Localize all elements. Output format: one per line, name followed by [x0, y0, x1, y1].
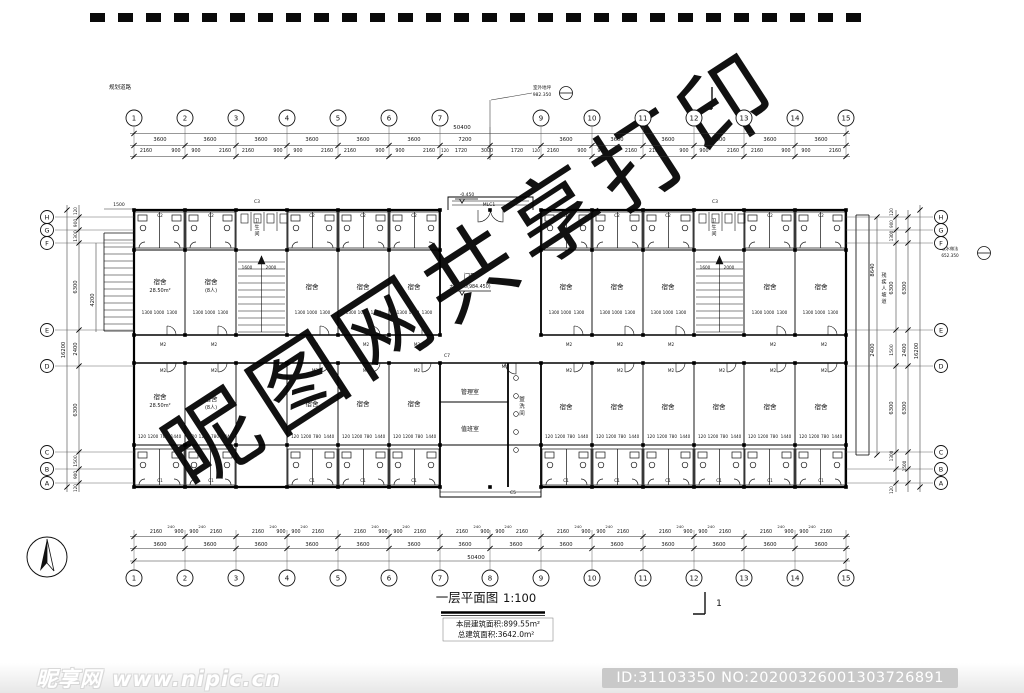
annotation: 240	[605, 524, 613, 529]
annotation: 3600	[203, 542, 216, 548]
annotation: 宿舍	[560, 402, 574, 411]
dim-label: 780	[364, 434, 372, 439]
annotation: 900	[679, 148, 688, 154]
annotation: 2160	[423, 148, 435, 154]
annotation: 900	[189, 529, 198, 535]
annotation: 3000	[481, 148, 493, 154]
annotation: 2160	[751, 148, 763, 154]
annotation: 1500	[902, 460, 907, 471]
tag-label: C2	[767, 213, 773, 218]
annotation: 2160	[557, 529, 569, 535]
annotation: 3600	[610, 542, 623, 548]
annotation: 4200	[90, 293, 96, 306]
annotation: 宿舍	[662, 282, 676, 291]
grid-bubble-label: E	[45, 326, 49, 334]
annotation: 6300	[889, 401, 895, 414]
dim-label: 1440	[781, 434, 792, 439]
grid-bubble-label: 4	[285, 575, 290, 583]
annotation: 6300	[902, 281, 908, 294]
annotation: 900	[395, 148, 404, 154]
annotation: 1500	[73, 455, 79, 467]
annotation: 6300	[889, 281, 895, 294]
annotation: (8人)	[205, 405, 217, 411]
tag-label: M2	[160, 342, 167, 347]
north-arrow	[27, 537, 67, 577]
grid-bubble-label: 15	[842, 575, 851, 583]
grid-bubble-label: 9	[539, 575, 543, 583]
grid-bubble-label: 11	[639, 575, 648, 583]
annotation: 6300	[902, 401, 908, 414]
tag-label: M2	[719, 368, 726, 373]
annotation: 6300	[73, 403, 79, 416]
dim-label: 1300	[167, 310, 178, 315]
annotation: ±0.000(984.450)	[449, 284, 490, 290]
annotation: 2160	[659, 529, 671, 535]
annotation: 宿舍	[306, 399, 320, 408]
annotation: 2160	[321, 148, 333, 154]
annotation: 3600	[712, 137, 725, 143]
dim-label: 120	[189, 434, 197, 439]
annotation: 2400	[870, 343, 876, 356]
generated-annotations: 5040036003600360036003600360072003600360…	[41, 83, 959, 609]
annotation: 120	[532, 148, 540, 153]
dim-label: 120	[138, 434, 146, 439]
annotation: C3	[712, 199, 718, 205]
annotation: 2160	[414, 529, 426, 535]
annotation: M4	[502, 364, 509, 370]
annotation: 900	[889, 220, 894, 228]
annotation: 室外地坪	[533, 84, 551, 91]
tag-label: M2	[312, 368, 319, 373]
grid-bubble-label: H	[45, 213, 50, 221]
annotation: 宿舍	[662, 402, 676, 411]
grid-bubble-label: 13	[740, 575, 749, 583]
dim-label: 1200	[199, 434, 210, 439]
annotation: 240	[402, 524, 410, 529]
annotation: 2160	[242, 148, 254, 154]
annotation: 240	[504, 524, 512, 529]
drawing-title: 一层平面图	[436, 590, 499, 605]
dim-label: 780	[211, 434, 219, 439]
annotation: 3600	[458, 542, 471, 548]
annotation: 2160	[140, 148, 152, 154]
grid-bubble-label: A	[939, 479, 944, 487]
tag-label: C1	[157, 478, 163, 483]
grid-bubble-label: 13	[740, 115, 749, 123]
annotation: 240	[167, 524, 175, 529]
annotation: 900	[375, 148, 384, 154]
grid-bubble-label: B	[939, 465, 943, 473]
tag-label: C1	[716, 478, 722, 483]
grid-bubble-label: 5	[336, 115, 340, 123]
title-block: 一层平面图 1:100 本层建筑面积:899.55m² 总建筑面积:3642.0…	[436, 590, 553, 641]
tag-label: C1	[360, 478, 366, 483]
dim-label: 1300	[574, 310, 585, 315]
annotation: 3600	[203, 137, 216, 143]
annotation: 900	[577, 148, 586, 154]
annotation: 652.350	[941, 253, 959, 258]
dim-label: 1440	[629, 434, 640, 439]
site-logo-text: 昵享网	[36, 667, 102, 691]
tag-label: C1	[614, 478, 620, 483]
dim-label: 120	[748, 434, 756, 439]
annotation: 3600	[610, 137, 623, 143]
dim-label: 1000	[307, 310, 318, 315]
grid-bubble-label: F	[45, 239, 49, 247]
annotation: 900	[597, 148, 606, 154]
tag-label: M2	[363, 368, 370, 373]
tag-label: M2	[414, 342, 421, 347]
grid-bubble-label: 1	[132, 115, 136, 123]
grid-bubble-label: 7	[438, 115, 442, 123]
tag-label: M2	[211, 342, 218, 347]
dim-label: 120	[545, 434, 553, 439]
site-url: www.nipic.cn	[112, 667, 281, 691]
dim-label: 780	[415, 434, 423, 439]
annotation: 900	[273, 148, 282, 154]
annotation: 2160	[354, 529, 366, 535]
grid-bubble-label: E	[939, 326, 943, 334]
annotation: 3600	[763, 542, 776, 548]
tag-label: C2	[818, 213, 824, 218]
annotation: 2400	[73, 342, 79, 355]
annotation: 900	[698, 529, 707, 535]
annotation: 残疾人坡道	[881, 272, 886, 305]
dim-label: 1300	[828, 310, 839, 315]
grid-bubble-label: B	[45, 465, 49, 473]
annotation: 宿舍	[815, 282, 829, 291]
grid-bubble-label: 7	[438, 575, 442, 583]
annotation: 28.50m²	[149, 403, 170, 409]
annotation: 50400	[467, 555, 485, 561]
annotation: 2160	[829, 148, 841, 154]
dim-label: 1200	[148, 434, 159, 439]
annotation: 3600	[153, 137, 166, 143]
dim-label: 120	[342, 434, 350, 439]
grid-bubble-label: D	[938, 362, 943, 370]
annotation: 120	[889, 486, 894, 494]
annotation: 2160	[727, 148, 739, 154]
annotation: 900	[801, 148, 810, 154]
dim-label: 1000	[815, 310, 826, 315]
grid-bubble-label: 11	[639, 115, 648, 123]
dim-label: 1300	[625, 310, 636, 315]
annotation: 120	[889, 208, 894, 216]
annotation: 900	[293, 148, 302, 154]
dim-label: 1200	[657, 434, 668, 439]
floor-plan-drawing: 昵图网共享打印 50400360036003600360036003600720…	[0, 0, 1024, 660]
dim-label: 1440	[375, 434, 386, 439]
tag-label: M2	[363, 342, 370, 347]
annotation: (8人)	[205, 288, 217, 294]
dim-label: 1200	[708, 434, 719, 439]
dim-label: 1300	[218, 310, 229, 315]
dim-label: 780	[567, 434, 575, 439]
dim-label: 1300	[549, 310, 560, 315]
grid-bubble-label: 14	[791, 575, 800, 583]
dim-label: 780	[313, 434, 321, 439]
dim-label: 1300	[651, 310, 662, 315]
tag-label: C2	[309, 213, 315, 218]
annotation: 3600	[407, 137, 420, 143]
annotation: 900	[191, 148, 200, 154]
annotation: 240	[198, 524, 206, 529]
dim-label: 1200	[606, 434, 617, 439]
tag-label: C2	[208, 213, 214, 218]
annotation: 3600	[559, 542, 572, 548]
dim-label: 1440	[171, 434, 182, 439]
total-area-text: 总建筑面积:3642.0m²	[458, 629, 535, 639]
annotation: 宿舍	[154, 277, 168, 286]
dim-label: 780	[618, 434, 626, 439]
dim-label: 1200	[352, 434, 363, 439]
tag-label: C1	[818, 478, 824, 483]
annotation: 2160	[547, 148, 559, 154]
grid-bubble-label: D	[44, 362, 49, 370]
annotation: MLC1	[483, 202, 496, 208]
dim-label: 1300	[600, 310, 611, 315]
annotation: 900	[480, 529, 489, 535]
annotation: 3600	[559, 137, 572, 143]
dim-label: 1300	[295, 310, 306, 315]
tag-label: C2	[411, 213, 417, 218]
annotation: 1	[716, 599, 722, 609]
dim-label: 780	[160, 434, 168, 439]
tag-label: C1	[208, 478, 214, 483]
annotation: 900	[73, 219, 79, 228]
site-logo[interactable]: 昵享网www.nipic.cn	[36, 663, 281, 693]
grid-bubble-label: F	[939, 239, 943, 247]
annotation: 8640	[870, 263, 876, 276]
tag-label: C2	[360, 213, 366, 218]
dim-label: 120	[647, 434, 655, 439]
annotation: -0.450	[460, 192, 475, 198]
dim-label: 1300	[777, 310, 788, 315]
annotation: 3600	[305, 137, 318, 143]
dim-label: 1000	[154, 310, 165, 315]
annotation: 240	[574, 524, 582, 529]
dim-label: 1300	[803, 310, 814, 315]
annotation: 宿舍	[560, 282, 574, 291]
annotation: 1500	[889, 344, 895, 356]
grid-bubble-label: 1	[132, 575, 136, 583]
dim-label: 120	[596, 434, 604, 439]
annotation: 240	[371, 524, 379, 529]
annotation: 50400	[453, 125, 471, 131]
tag-label: M2	[160, 368, 167, 373]
tag-label: C2	[665, 213, 671, 218]
grid-bubble-label: 2	[183, 115, 187, 123]
grid-bubble-label: 2	[183, 575, 187, 583]
annotation: 900	[799, 529, 808, 535]
dim-label: 1300	[422, 310, 433, 315]
grid-bubble-label: H	[939, 213, 944, 221]
tag-label: M2	[211, 368, 218, 373]
annotation: 120	[441, 148, 449, 153]
annotation: 2160	[617, 529, 629, 535]
annotation: 900	[171, 148, 180, 154]
dim-label: 1300	[752, 310, 763, 315]
tag-label: M2	[617, 342, 624, 347]
dim-label: 1300	[142, 310, 153, 315]
floor-area-text: 本层建筑面积:899.55m²	[456, 619, 540, 629]
grid-bubble-label: 12	[690, 575, 699, 583]
dim-label: 1300	[346, 310, 357, 315]
grid-bubble-label: 3	[234, 115, 238, 123]
annotation: 宿舍	[713, 402, 727, 411]
dim-label: 120	[799, 434, 807, 439]
tag-label: C1	[665, 478, 671, 483]
dim-label: 1000	[561, 310, 572, 315]
dim-label: 1300	[676, 310, 687, 315]
dim-label: 1300	[320, 310, 331, 315]
dim-label: 120	[291, 434, 299, 439]
dim-label: 1440	[222, 434, 233, 439]
annotation: 3600	[254, 542, 267, 548]
annotation: 16200	[61, 342, 67, 359]
image-id-badge: ID:31103350 NO:20200326001303726891	[602, 668, 958, 688]
dim-label: 1440	[680, 434, 691, 439]
grid-bubble-label: 9	[539, 115, 543, 123]
dim-label: 1200	[403, 434, 414, 439]
annotation: 3600	[305, 542, 318, 548]
dim-label: 1300	[193, 310, 204, 315]
annotation: 3600	[814, 137, 827, 143]
annotation: 2160	[252, 529, 264, 535]
annotation: 2160	[649, 148, 661, 154]
annotation: 900	[73, 471, 78, 479]
annotation: 2160	[210, 529, 222, 535]
annotation: 宿舍	[306, 282, 320, 291]
dim-label: 1200	[809, 434, 820, 439]
annotation: 2160	[456, 529, 468, 535]
annotation: 盥洗间	[519, 395, 525, 417]
annotation: 2160	[719, 529, 731, 535]
annotation: 240	[808, 524, 816, 529]
annotation: 3600	[661, 137, 674, 143]
annotation: 982.350	[533, 92, 552, 98]
dim-label: 1300	[371, 310, 382, 315]
annotation: 240	[473, 524, 481, 529]
grid-bubble-label: 12	[690, 115, 699, 123]
annotation: 门厅	[464, 271, 478, 280]
annotation: 900	[378, 529, 387, 535]
dim-label: 120	[393, 434, 401, 439]
annotation: 宿舍	[357, 399, 371, 408]
grid-bubble-label: 6	[387, 115, 392, 123]
dim-label: 1440	[578, 434, 589, 439]
annotation: 7200	[458, 137, 471, 143]
annotation: 1	[723, 90, 729, 100]
grid-bubble-label: G	[44, 226, 49, 234]
stock-image-page: 昵图网共享打印 50400360036003600360036003600720…	[0, 0, 1024, 693]
footer-bar: 昵享网www.nipic.cn ID:31103350 NO:202003260…	[0, 663, 1024, 693]
annotation: 2160	[312, 529, 324, 535]
tag-label: M2	[668, 342, 675, 347]
annotation: 2400	[902, 343, 908, 356]
grid-bubble-label: G	[938, 226, 943, 234]
annotation: 宿舍	[205, 394, 219, 403]
annotation: 900	[276, 529, 285, 535]
annotation: 1720	[455, 148, 467, 154]
annotation: 宿舍	[815, 402, 829, 411]
grid-bubble-label: C	[939, 448, 944, 456]
annotation: 规划道路	[109, 83, 132, 91]
annotation: 3600	[509, 542, 522, 548]
annotation: 1500	[113, 202, 125, 208]
tag-label: C1	[563, 478, 569, 483]
annotation: 120	[73, 207, 78, 215]
annotation: 900	[683, 529, 692, 535]
dim-label: 1440	[731, 434, 742, 439]
dim-label: 1000	[764, 310, 775, 315]
grid-bubble-label: 8	[488, 575, 492, 583]
annotation: 3600	[153, 542, 166, 548]
annotation: 宿舍	[154, 392, 168, 401]
annotation: 值班室	[461, 425, 479, 433]
annotation: 2160	[150, 529, 162, 535]
annotation: 900	[581, 529, 590, 535]
dim-label: 1000	[205, 310, 216, 315]
dim-label: 780	[770, 434, 778, 439]
annotation: 240	[300, 524, 308, 529]
annotation: 2160	[760, 529, 772, 535]
annotation: 3600	[254, 137, 267, 143]
drawing-scale: 1:100	[503, 591, 536, 605]
grid-bubble-label: 4	[285, 115, 290, 123]
dim-label: 780	[720, 434, 728, 439]
tag-label: M2	[821, 342, 828, 347]
annotation: 3600	[763, 137, 776, 143]
annotation: 6300	[73, 280, 79, 293]
tag-label: M2	[312, 342, 319, 347]
tag-label: M2	[770, 368, 777, 373]
annotation: 900	[174, 529, 183, 535]
tag-label: M2	[617, 368, 624, 373]
dim-label: 780	[821, 434, 829, 439]
dim-label: 1200	[555, 434, 566, 439]
annotation: 2160	[516, 529, 528, 535]
annotation: 240	[676, 524, 684, 529]
grid-bubble-label: 5	[336, 575, 340, 583]
grid-bubble-label: 3	[234, 575, 238, 583]
annotation: 宿舍	[611, 402, 625, 411]
annotation: 宿舍	[408, 282, 422, 291]
tag-label: C2	[157, 213, 163, 218]
dim-label: 1000	[409, 310, 420, 315]
annotation: 240	[707, 524, 715, 529]
annotation: 28.50m²	[149, 288, 170, 294]
tag-label: M2	[770, 342, 777, 347]
dim-label: 1000	[663, 310, 674, 315]
tag-label: M2	[566, 342, 573, 347]
grid-bubble-label: 6	[387, 575, 392, 583]
annotation: 900	[393, 529, 402, 535]
annotation: 2160	[820, 529, 832, 535]
grid-bubble-label: 10	[588, 575, 597, 583]
tag-label: M2	[566, 368, 573, 373]
dim-label: 780	[669, 434, 677, 439]
annotation: 3600	[356, 137, 369, 143]
annotation: 900	[781, 148, 790, 154]
grid-bubble-label: 10	[588, 115, 597, 123]
dim-label: 1440	[324, 434, 335, 439]
annotation: 3600	[712, 542, 725, 548]
annotation: 900	[291, 529, 300, 535]
annotation: 900	[784, 529, 793, 535]
tag-label: C2	[563, 213, 569, 218]
tag-label: C2	[614, 213, 620, 218]
